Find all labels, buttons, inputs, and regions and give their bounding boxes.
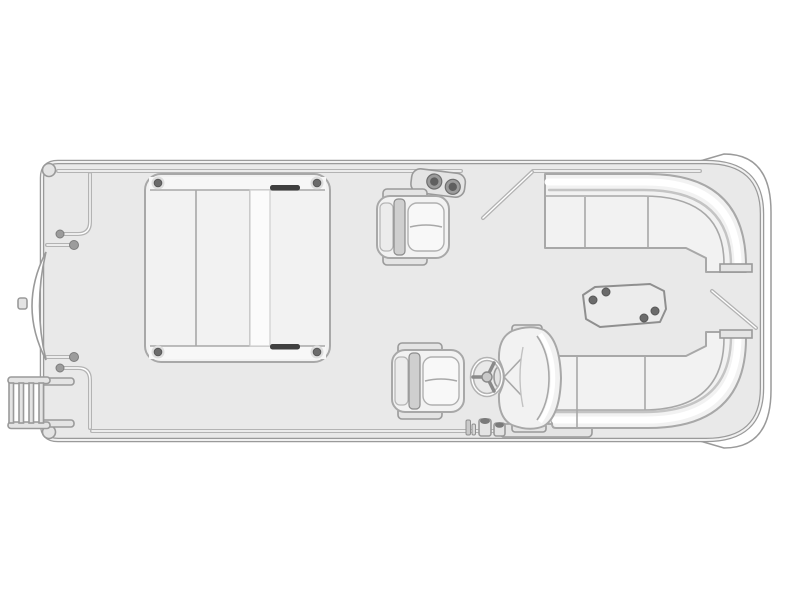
bench-hinge xyxy=(270,344,300,350)
captain-chair-aft xyxy=(392,343,464,419)
couch-step-lip xyxy=(720,264,752,272)
hinge-ball xyxy=(70,353,79,362)
wheel-hub xyxy=(482,372,492,382)
chair-back-cushion xyxy=(395,357,408,405)
helm-seat xyxy=(499,325,561,432)
hinge-ball xyxy=(70,241,79,250)
ladder-rung xyxy=(29,383,34,423)
cocktail-table xyxy=(583,284,666,327)
couch-step-lip xyxy=(720,330,752,338)
ladder-rung xyxy=(19,383,24,423)
gate-latch-knob xyxy=(18,298,27,309)
chair-backrest xyxy=(394,199,405,255)
bench-slide-bar xyxy=(250,190,270,346)
forward-bench xyxy=(145,174,330,362)
bench-hinge xyxy=(270,185,300,191)
corner-cap xyxy=(43,164,56,177)
rail-end-cap xyxy=(56,364,64,372)
rail-end-cap xyxy=(56,230,64,238)
ladder-rung xyxy=(39,383,44,423)
boat-floorplan-diagram xyxy=(0,0,800,600)
ladder-rung xyxy=(9,383,14,423)
chair-back-cushion xyxy=(380,203,393,251)
screenshot-canvas xyxy=(0,0,800,600)
chair-backrest xyxy=(409,353,420,409)
captain-chair-forward xyxy=(377,189,449,265)
